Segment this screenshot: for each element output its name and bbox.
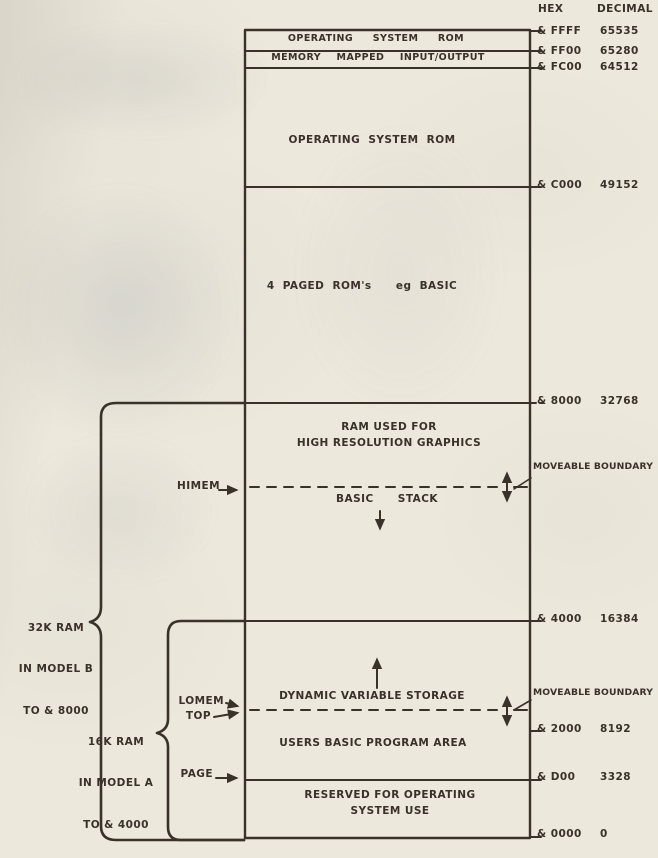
pointer-top-label: TOP (160, 711, 211, 723)
moveable-boundary-lower-label: MOVEABLE BOUNDARY (533, 688, 653, 698)
address-decimal-ffff: 65535 (600, 26, 639, 38)
ram-32k-line1: 32K RAM (10, 622, 102, 636)
ram-16k-line2: IN MODEL A (66, 777, 166, 791)
address-hex-ffff: & FFFF (537, 26, 581, 38)
address-hex-d00: & D00 (537, 772, 575, 784)
section-hires-graphics-line1: RAM USED FOR (341, 422, 437, 434)
section-os-rom-top: OPERATING SYSTEM ROM (288, 34, 464, 44)
section-memory-mapped-io: MEMORY MAPPED INPUT/OUTPUT (271, 53, 485, 63)
section-reserved-os-line1: RESERVED FOR OPERATING (304, 790, 475, 802)
address-hex-8000: & 8000 (537, 396, 582, 408)
decimal-column-header: DECIMAL (597, 4, 653, 16)
bracket-16k-ram (157, 621, 244, 840)
address-decimal-fc00: 64512 (600, 62, 639, 74)
lomem-arrow (226, 703, 237, 706)
section-basic-stack: BASIC STACK (336, 494, 438, 506)
address-hex-2000: & 2000 (537, 724, 582, 736)
address-decimal-d00: 3328 (600, 772, 631, 784)
address-hex-fc00: & FC00 (537, 62, 582, 74)
hex-column-header: HEX (538, 4, 563, 16)
address-decimal-4000: 16384 (600, 614, 639, 626)
ram-16k-line1: 16K RAM (66, 736, 166, 750)
section-users-basic-program-area: USERS BASIC PROGRAM AREA (279, 738, 466, 750)
section-dynamic-variable-storage: DYNAMIC VARIABLE STORAGE (279, 691, 465, 703)
section-os-rom: OPERATING SYSTEM ROM (289, 135, 456, 147)
moveable-boundary-lower-connector (514, 700, 531, 710)
memory-box (245, 30, 530, 838)
pointer-lomem-label: LOMEM (168, 696, 224, 708)
scanned-memory-map-page: HEX DECIMAL & FFFF 65535 & FF00 65280 & … (0, 0, 658, 858)
ram-16k-line3: TO & 4000 (66, 819, 166, 833)
address-decimal-0000: 0 (600, 829, 608, 841)
address-decimal-2000: 8192 (600, 724, 631, 736)
address-decimal-ff00: 65280 (600, 46, 639, 58)
ram-32k-line2: IN MODEL B (10, 663, 102, 677)
address-hex-c000: & C000 (537, 180, 582, 192)
address-decimal-c000: 49152 (600, 180, 639, 192)
address-decimal-8000: 32768 (600, 396, 639, 408)
pointer-page-label: PAGE (162, 769, 213, 781)
section-reserved-os-line2: SYSTEM USE (351, 806, 430, 818)
address-hex-ff00: & FF00 (537, 46, 581, 58)
address-hex-0000: & 0000 (537, 829, 582, 841)
ram-16k-annotation: 16K RAM IN MODEL A TO & 4000 (66, 708, 166, 858)
pointer-himem-label: HIMEM (168, 481, 220, 493)
moveable-boundary-upper-label: MOVEABLE BOUNDARY (533, 462, 653, 472)
section-hires-graphics-line2: HIGH RESOLUTION GRAPHICS (297, 438, 481, 450)
section-paged-roms: 4 PAGED ROM's eg BASIC (267, 281, 457, 293)
top-arrow (214, 713, 237, 717)
address-hex-4000: & 4000 (537, 614, 582, 626)
